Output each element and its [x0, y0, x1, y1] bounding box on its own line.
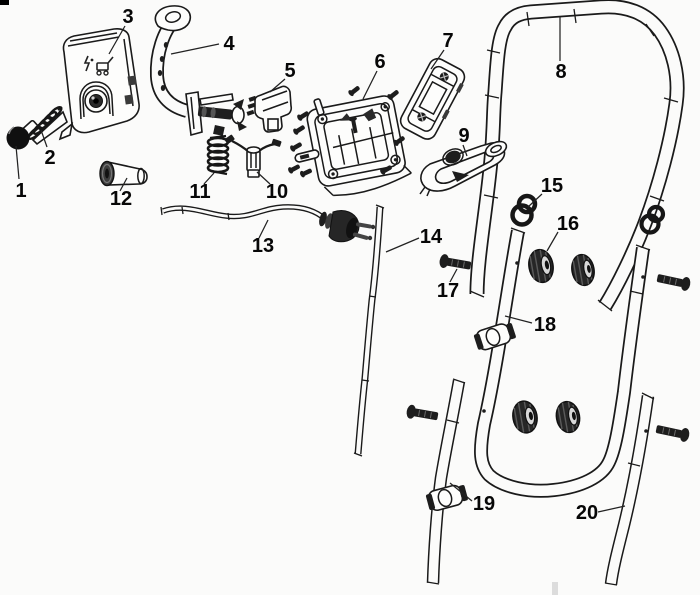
callout-7-label: 7: [442, 30, 453, 52]
callout-14-label: 14: [420, 226, 443, 248]
callout-8: 8: [555, 17, 566, 83]
part-16-knurled-nut: [554, 400, 582, 435]
callout-13-label: 13: [252, 235, 274, 257]
page-artifact: [552, 582, 558, 595]
diagram-canvas: 1 2 3 4 5 6 7 8 9 10 11 12: [0, 0, 700, 595]
part-19-clamp-top: [473, 321, 517, 352]
callout-17-label: 17: [437, 280, 459, 302]
callout-3-label: 3: [122, 6, 133, 28]
plug-prong: [352, 232, 372, 240]
part-16-knurled-nut: [569, 253, 596, 287]
corner-mark: [0, 0, 9, 5]
callout-16: 16: [547, 213, 579, 251]
callout-17: 17: [437, 269, 459, 302]
callout-10: 10: [257, 172, 288, 203]
callout-10-label: 10: [266, 181, 288, 203]
callout-20: 20: [576, 502, 625, 524]
part-1-knob: [7, 127, 30, 150]
callout-2-label: 2: [44, 147, 55, 169]
part-17-bolt: [406, 404, 439, 423]
callout-20-label: 20: [576, 502, 598, 524]
callout-19-label: 19: [473, 493, 495, 515]
callout-4-label: 4: [223, 33, 235, 55]
callout-1-label: 1: [15, 180, 26, 202]
callout-14: 14: [386, 226, 443, 252]
callout-8-label: 8: [555, 61, 566, 83]
callout-4: 4: [171, 33, 235, 55]
part-19-clamp-bottom: [425, 483, 469, 513]
part-17-bolt: [439, 253, 472, 272]
plug-icon: [318, 211, 376, 242]
part-20-tube-left: [427, 379, 465, 584]
callout-5-label: 5: [284, 60, 295, 82]
callout-11: 11: [189, 173, 214, 203]
callout-15-label: 15: [541, 175, 563, 197]
part-15-ring-left: [513, 196, 536, 225]
part-17-bolt: [656, 271, 692, 292]
lever-pivot-assembly: [186, 92, 247, 136]
part-17-bolt: [655, 422, 691, 443]
callout-1: 1: [15, 146, 26, 202]
callout-12-label: 12: [110, 188, 132, 210]
part-5-switch: [247, 86, 292, 132]
part-3-switch-box-cover: [33, 29, 139, 144]
part-11-spring: [208, 136, 228, 174]
part-10-cable-clip: [224, 134, 282, 177]
callout-13: 13: [252, 220, 274, 257]
part-16-knurled-nut: [526, 248, 555, 285]
callout-11-label: 11: [189, 181, 210, 203]
part-16-knurled-nut: [510, 399, 539, 435]
callout-6-label: 6: [374, 51, 385, 73]
callout-16-label: 16: [557, 213, 579, 235]
part-14-link-rod: [354, 205, 384, 456]
callout-6: 6: [363, 51, 386, 99]
parts-diagram: 1 2 3 4 5 6 7 8 9 10 11 12: [0, 0, 700, 595]
callout-9-label: 9: [458, 125, 469, 147]
part-4-lever: [155, 6, 190, 111]
part-12-bushing: [100, 162, 147, 186]
callout-18-label: 18: [534, 314, 556, 336]
callout-15: 15: [528, 175, 563, 207]
